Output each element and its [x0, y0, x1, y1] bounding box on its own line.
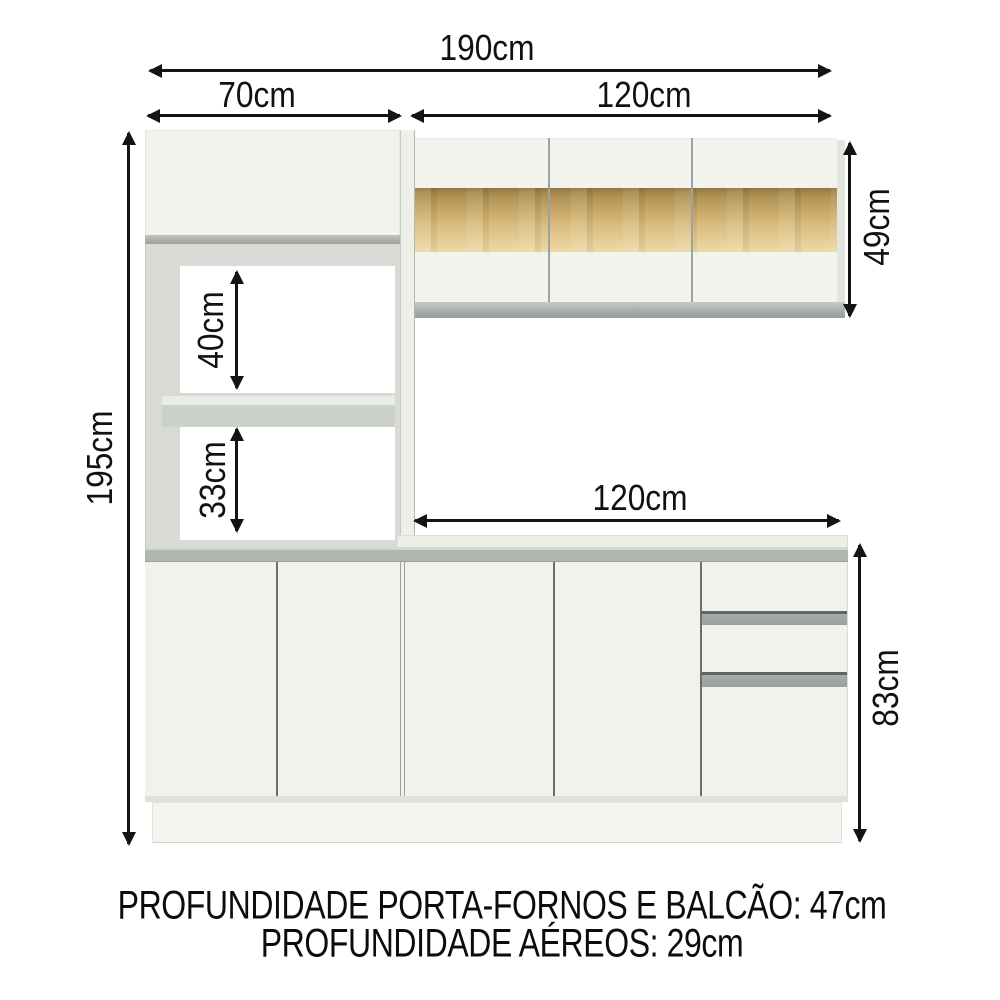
upper-cabinet-handle-profile	[415, 302, 845, 318]
dim-label-base-height: 83cm	[865, 649, 907, 726]
upper-cabinet-side-panel	[837, 140, 845, 316]
tower-door-handle-profile	[145, 235, 400, 244]
dim-arrow-total-width	[150, 69, 830, 72]
drawer-handle	[702, 672, 847, 687]
dim-arrow-total-height	[127, 133, 130, 844]
counter-handle-profile	[145, 548, 848, 562]
product-dimension-diagram: 190cm 70cm 120cm 195cm 40cm 33cm 120cm 4…	[0, 0, 1000, 1000]
drawer-handle	[702, 611, 847, 625]
dim-label-total-width: 190cm	[439, 27, 534, 69]
dim-label-upper-height: 49cm	[856, 188, 898, 265]
countertop	[397, 535, 848, 548]
shelf-top-surface	[162, 396, 395, 405]
dim-arrow-niche-upper	[235, 272, 238, 388]
module-joint-line	[400, 562, 401, 796]
depth-note-upper: PROFUNDIDADE AÉREOS: 29cm	[261, 922, 744, 967]
base-door-divider	[276, 562, 278, 796]
dim-arrow-counter-width	[415, 519, 839, 522]
shelf-front-edge	[162, 405, 395, 427]
upper-cabinet-glass-band	[415, 188, 837, 252]
dim-arrow-upper-height	[848, 143, 851, 316]
dim-label-counter-width: 120cm	[592, 477, 687, 519]
base-door-divider	[553, 562, 555, 796]
module-joint-line	[404, 562, 405, 796]
dim-arrow-base-height	[858, 545, 861, 841]
upper-cabinet-door-divider	[691, 138, 693, 302]
tower-side-panel	[400, 130, 415, 548]
dim-label-niche-upper: 40cm	[190, 291, 232, 368]
upper-cabinet-door-divider	[548, 138, 550, 302]
plinth	[152, 802, 842, 843]
tower-top-door	[145, 130, 400, 235]
dim-arrow-niche-lower	[235, 429, 238, 531]
dim-label-total-height: 195cm	[79, 410, 121, 505]
dim-label-tower-width: 70cm	[218, 74, 295, 116]
dim-label-upper-width: 120cm	[596, 74, 691, 116]
dim-label-niche-lower: 33cm	[192, 441, 234, 518]
